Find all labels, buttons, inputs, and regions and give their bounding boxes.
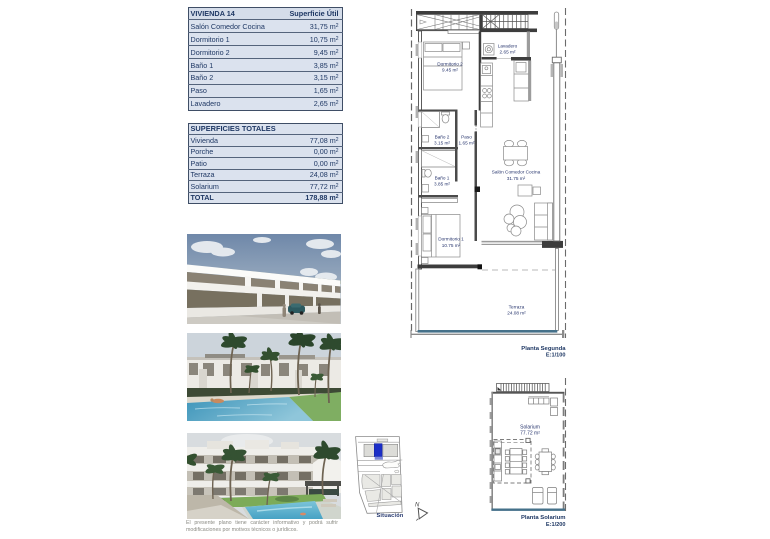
svg-text:E:1/200: E:1/200: [546, 522, 566, 528]
svg-text:Planta Solarium: Planta Solarium: [521, 515, 566, 521]
svg-text:E:1/100: E:1/100: [546, 353, 566, 359]
svg-text:Dormitorio 1: Dormitorio 1: [438, 237, 464, 242]
svg-text:Planta Segunda: Planta Segunda: [521, 346, 566, 352]
svg-text:2.65 m²: 2.65 m²: [500, 50, 516, 55]
svg-text:N: N: [415, 503, 420, 509]
svg-text:Terraza: Terraza: [509, 305, 525, 310]
svg-text:Lavadero: Lavadero: [498, 44, 518, 49]
svg-text:3.85 m²: 3.85 m²: [434, 182, 450, 187]
svg-text:31.75 m²: 31.75 m²: [507, 176, 526, 181]
svg-text:24.08 m²: 24.08 m²: [507, 311, 526, 316]
svg-text:Dormitorio 2: Dormitorio 2: [437, 62, 463, 67]
svg-text:Baño 1: Baño 1: [435, 176, 450, 181]
svg-text:3.15 m²: 3.15 m²: [434, 141, 450, 146]
svg-text:Salón Comedor Cocina: Salón Comedor Cocina: [492, 170, 541, 175]
svg-text:1.65 m²: 1.65 m²: [459, 141, 475, 146]
svg-text:Paso: Paso: [461, 135, 472, 140]
svg-text:10.75 m²: 10.75 m²: [442, 243, 461, 248]
svg-text:77.72 m²: 77.72 m²: [520, 431, 540, 437]
svg-text:9.45 m²: 9.45 m²: [442, 68, 458, 73]
svg-text:Baño 2: Baño 2: [435, 135, 450, 140]
